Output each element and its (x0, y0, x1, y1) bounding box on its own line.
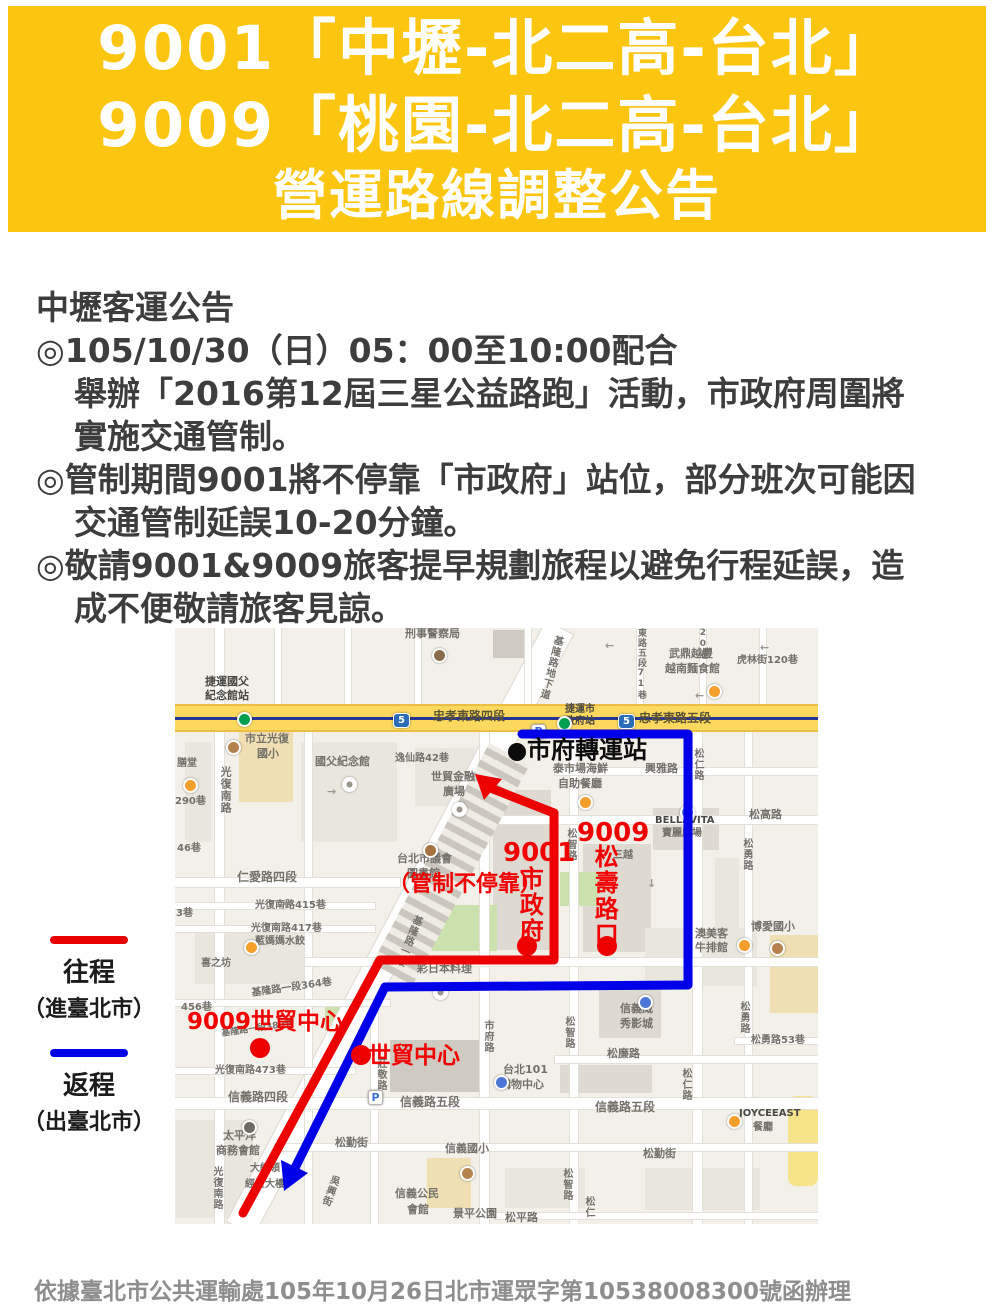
notice-line: 實施交通管制。 (36, 415, 966, 458)
notice-line: ◎管制期間9001將不停靠「市政府」站位，部分班次可能因 (36, 458, 966, 501)
route-overlay (175, 628, 818, 1224)
cityhall-transfer-station-dot (508, 743, 526, 761)
title-banner: 9001「中壢-北二高-台北」 9009「桃園-北二高-台北」 營運路線調整公告 (8, 6, 986, 232)
route-return-line (295, 734, 688, 1168)
legend-return-line (50, 1049, 128, 1057)
notice-text-block: 中壢客運公告◎105/10/30（日）05：00至10:00配合舉辦「2016第… (36, 286, 966, 630)
title-line-1: 9001「中壢-北二高-台北」 (97, 10, 896, 87)
legend-inbound-sublabel: （進臺北市） (10, 991, 168, 1023)
route-legend: 往程 （進臺北市） 返程 （出臺北市） (10, 936, 168, 1136)
route-inbound-line (243, 789, 554, 1213)
title-line-2: 9009「桃園-北二高-台北」 (97, 87, 896, 164)
legend-inbound-line (50, 936, 128, 944)
legend-return-sublabel: （出臺北市） (10, 1104, 168, 1136)
stop-dot-wtc (351, 1045, 371, 1065)
legend-inbound-label: 往程 (10, 952, 168, 989)
footer-reference: 依據臺北市公共運輸處105年10月26日北市運眾字第10538008300號函辦… (34, 1272, 851, 1304)
notice-line: 中壢客運公告 (36, 286, 966, 329)
notice-line: 舉辦「2016第12屆三星公益路跑」活動，市政府周圍將 (36, 372, 966, 415)
notice-line: ◎105/10/30（日）05：00至10:00配合 (36, 329, 966, 372)
title-line-3: 營運路線調整公告 (273, 164, 721, 228)
stop-dot-9009-songshou (597, 936, 617, 956)
route-map: 刑事警察局捷運國父紀念館站市立光復國小國父紀念館逸仙路42巷世貿金融廣場光復南路… (175, 628, 818, 1224)
announcement-poster: 9001「中壢-北二高-台北」 9009「桃園-北二高-台北」 營運路線調整公告… (0, 0, 994, 1304)
notice-line: 交通管制延誤10-20分鐘。 (36, 501, 966, 544)
notice-line: 成不便敬請旅客見諒。 (36, 587, 966, 630)
stop-dot-9001-shizhengfu (517, 936, 537, 956)
notice-line: ◎敬請9001&9009旅客提早規劃旅程以避免行程延誤，造 (36, 544, 966, 587)
legend-return-label: 返程 (10, 1065, 168, 1102)
stop-dot-9009-wtc (250, 1038, 270, 1058)
